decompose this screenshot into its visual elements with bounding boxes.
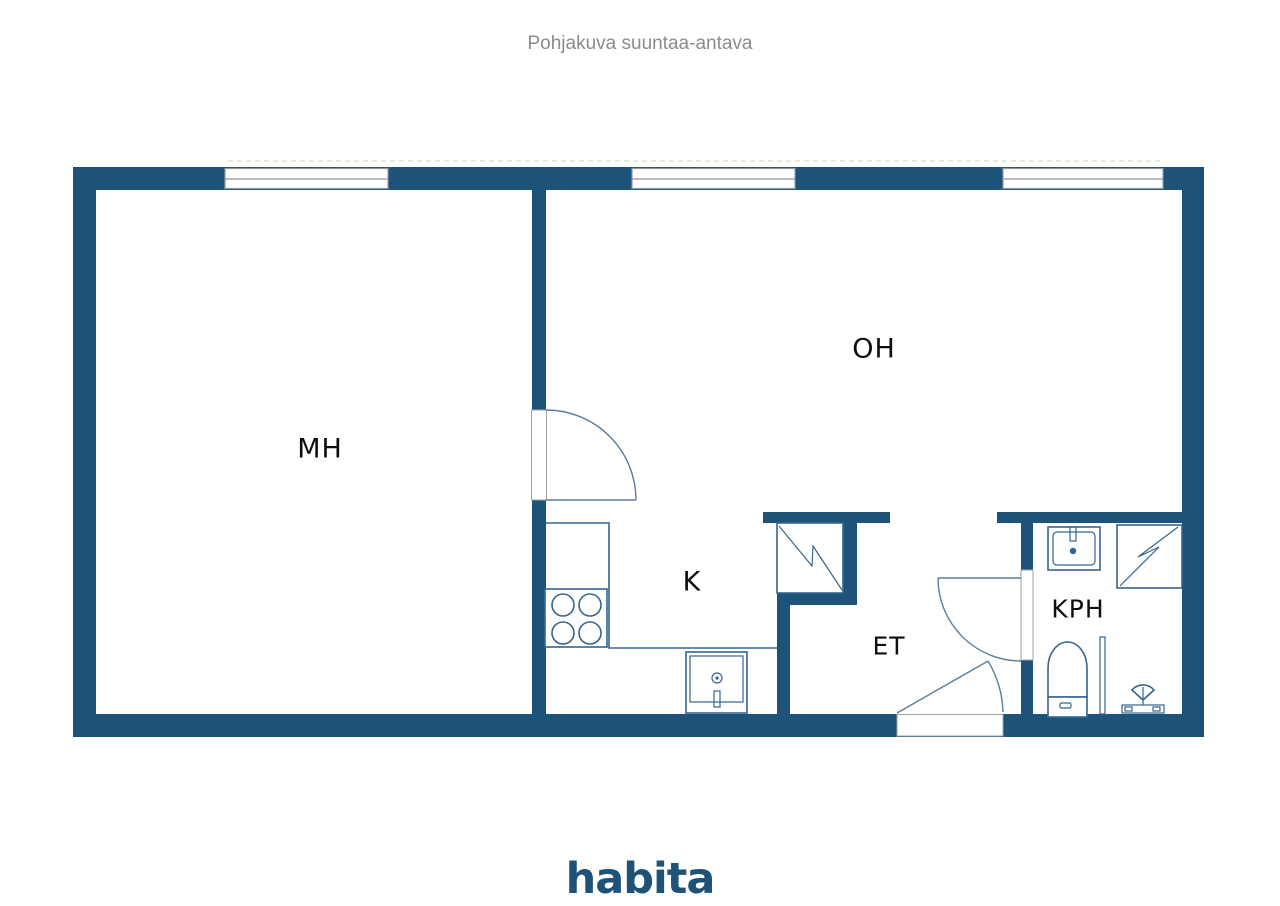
- window: [632, 169, 795, 189]
- interior-walls: [532, 190, 1183, 714]
- room-label-kph: KPH: [1051, 595, 1104, 624]
- stove-icon: [545, 589, 607, 647]
- room-label-oh: OH: [852, 334, 896, 365]
- wardrobe-icon: [777, 523, 843, 593]
- habita-logo: habita: [0, 854, 1280, 904]
- shower-icon: [1117, 525, 1182, 588]
- shower-mixer-icon: [1122, 685, 1164, 713]
- window: [225, 169, 388, 189]
- interior-door: [532, 410, 637, 500]
- floor-plan-drawing: [0, 0, 1280, 906]
- room-label-et: ET: [872, 632, 905, 661]
- bathroom-door: [938, 570, 1033, 661]
- room-label-mh: MH: [297, 434, 343, 465]
- toilet-icon: [1048, 642, 1087, 717]
- room-label-k: K: [683, 567, 702, 598]
- kitchen-sink-icon: [686, 652, 747, 713]
- entrance-door: [897, 661, 1003, 736]
- window: [1003, 169, 1163, 189]
- washbasin-icon: [1048, 527, 1100, 570]
- floor-plan-page: Pohjakuva suuntaa-antava: [0, 0, 1280, 906]
- exterior-walls: [73, 167, 1204, 737]
- shower-screen: [1100, 637, 1105, 714]
